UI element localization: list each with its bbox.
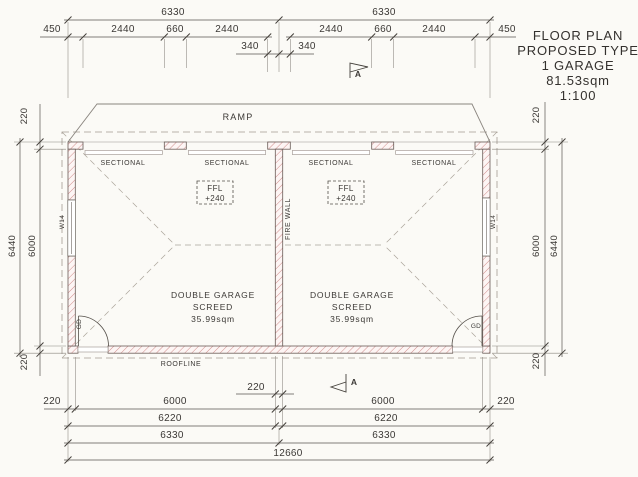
dim-6330-top-right: 6330 (372, 7, 396, 18)
dim-6000-bottom-right: 6000 (371, 396, 395, 407)
floor-plan-drawing: ROOFLINE RAMP FIRE WALL W14 W14 (0, 0, 638, 472)
dim-6220-right: 6220 (374, 413, 398, 424)
sectional-label: SECTIONAL (411, 160, 456, 167)
dim-220-left-bottom: 220 (19, 354, 30, 370)
ffl-value: +240 (336, 194, 356, 203)
wall-pier (164, 142, 186, 149)
dim-450-left: 450 (43, 24, 61, 35)
dim-2440: 2440 (319, 24, 343, 35)
sectional-door (292, 151, 369, 155)
wall-segment (68, 149, 75, 200)
ffl-label: FFL (338, 184, 354, 193)
window-left-label: W14 (59, 215, 66, 229)
garage-name-left: DOUBLE GARAGE (171, 290, 255, 300)
screed-label-right: SCREED (332, 302, 372, 312)
door-swing-arc (452, 316, 482, 346)
dim-340-left: 340 (241, 41, 259, 52)
fire-wall-label: FIRE WALL (285, 198, 292, 240)
dim-450-right: 450 (498, 24, 516, 35)
dim-660: 660 (166, 24, 184, 35)
dim-12660-total: 12660 (273, 448, 302, 459)
area-label-right: 35.99sqm (330, 314, 374, 324)
door-sill (78, 347, 108, 352)
ramp: RAMP (68, 104, 490, 142)
dim-660: 660 (374, 24, 392, 35)
sectional-door (85, 151, 162, 155)
dim-340-right: 340 (298, 41, 316, 52)
walls: FIRE WALL (68, 142, 490, 353)
dim-220-firewall: 220 (247, 382, 265, 393)
dimensions-top: 6330 6330 450 2440 660 2440 2440 660 244… (40, 7, 516, 98)
dim-2440: 2440 (215, 24, 239, 35)
title-block: FLOOR PLAN PROPOSED TYPE 1 GARAGE 81.53s… (517, 28, 638, 103)
dim-6000-left: 6000 (27, 235, 38, 257)
wall-segment (68, 256, 75, 346)
sectional-door (188, 151, 265, 155)
ramp-outline (68, 104, 490, 142)
dim-6330-top-left: 6330 (161, 7, 185, 18)
dim-220-left-top: 220 (19, 108, 30, 124)
dim-220-right-bottom: 220 (531, 353, 542, 369)
door-sill (453, 347, 483, 352)
section-markers: A A (331, 63, 368, 392)
roof-hip-line (384, 245, 497, 358)
sectional-label: SECTIONAL (100, 160, 145, 167)
door-right-label: GD (471, 323, 481, 330)
window-right-label: W14 (490, 215, 497, 229)
garage-name-right: DOUBLE GARAGE (310, 290, 394, 300)
dim-6440-right: 6440 (549, 235, 560, 257)
wall-pier (372, 142, 394, 149)
wall-segment (108, 346, 453, 353)
wall-segment (483, 346, 490, 353)
door-swing-arc (79, 316, 109, 346)
dimensions-left: 220 6440 6000 220 (7, 104, 66, 376)
wall-pier (268, 142, 291, 149)
title-line-2: PROPOSED TYPE (517, 43, 638, 58)
wall-segment (483, 256, 490, 346)
title-line-5: 1:100 (560, 88, 597, 103)
section-letter-top: A (355, 69, 361, 79)
dim-6330-bottom-left: 6330 (160, 430, 184, 441)
wall-pier (68, 142, 83, 149)
screed-label-left: SCREED (193, 302, 233, 312)
title-line-4: 81.53sqm (546, 73, 610, 88)
wall-segment (68, 346, 78, 353)
dim-6330-bottom-right: 6330 (372, 430, 396, 441)
ffl-value: +240 (205, 194, 225, 203)
fire-wall (275, 149, 282, 346)
dim-220-bottom-left: 220 (43, 396, 61, 407)
wall-segment (483, 149, 490, 198)
sectional-door (396, 151, 473, 155)
section-flag-bottom (331, 374, 346, 392)
wall-pier (475, 142, 490, 149)
dim-6000-bottom-left: 6000 (163, 396, 187, 407)
ramp-label: RAMP (223, 112, 254, 122)
dim-220-bottom-right: 220 (497, 396, 515, 407)
title-line-3: 1 GARAGE (542, 58, 615, 73)
title-line-1: FLOOR PLAN (533, 28, 623, 43)
roof-hip-line (62, 245, 175, 358)
sectional-label: SECTIONAL (308, 160, 353, 167)
dimensions-bottom: 220 220 6000 6000 220 6220 6220 6330 633… (43, 356, 515, 464)
dimensions-right: 220 6000 6440 220 (492, 102, 568, 376)
ffl-label: FFL (207, 184, 223, 193)
dim-6000-right: 6000 (531, 235, 542, 257)
section-letter-bottom: A (351, 377, 357, 387)
door-left-label: GD (76, 319, 83, 329)
dim-220-right-top: 220 (531, 107, 542, 123)
dim-2440: 2440 (111, 24, 135, 35)
dim-6440-left: 6440 (7, 235, 18, 257)
dim-2440: 2440 (422, 24, 446, 35)
roofline-label: ROOFLINE (161, 361, 202, 368)
sectional-label: SECTIONAL (204, 160, 249, 167)
dim-6220-left: 6220 (158, 413, 182, 424)
area-label-left: 35.99sqm (191, 314, 235, 324)
